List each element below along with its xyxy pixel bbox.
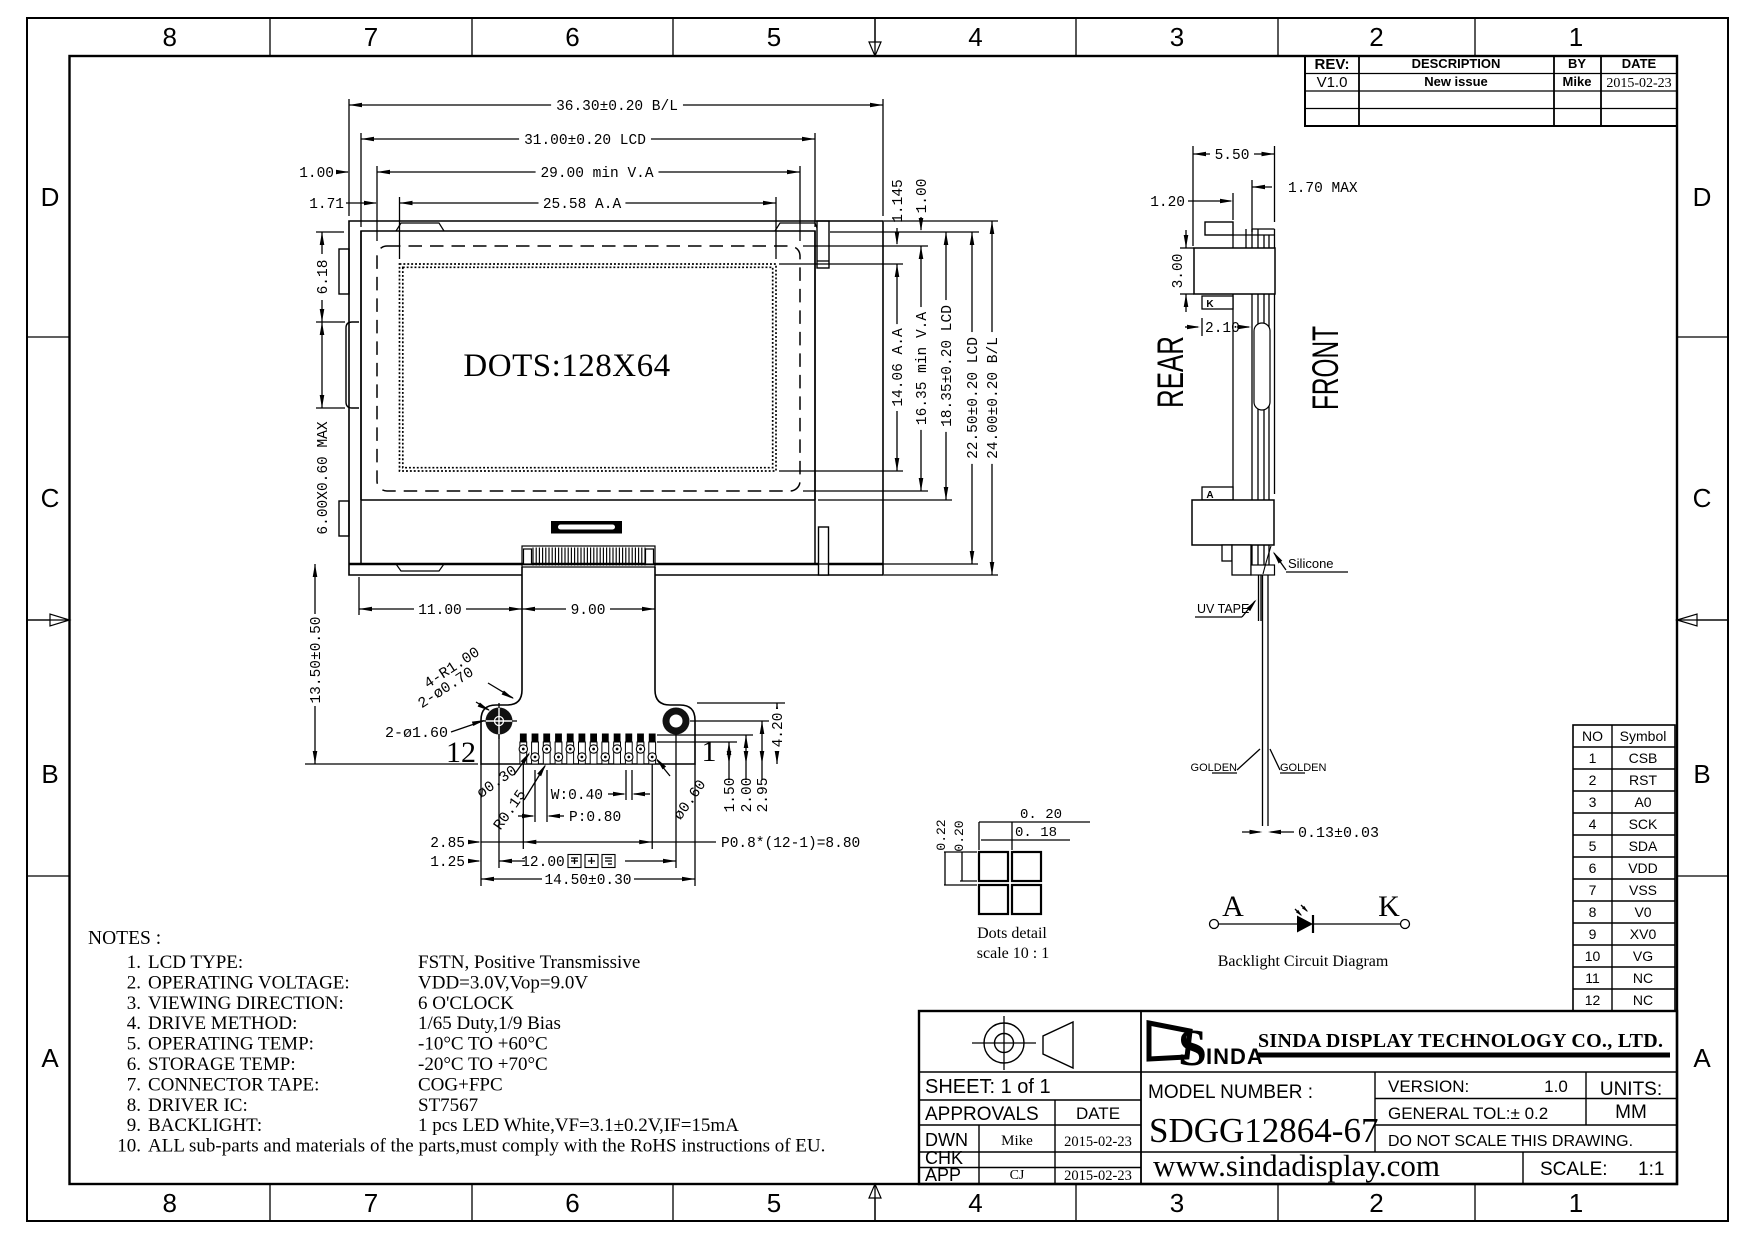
svg-text:4.: 4. — [127, 1013, 141, 1034]
svg-text:New issue: New issue — [1424, 74, 1488, 89]
svg-text:Symbol: Symbol — [1620, 728, 1667, 744]
svg-text:14.06 A.A: 14.06 A.A — [891, 328, 907, 407]
svg-text:9.: 9. — [127, 1115, 141, 1136]
svg-text:3: 3 — [1589, 794, 1597, 810]
svg-text:2.00: 2.00 — [740, 778, 756, 813]
svg-text:VSS: VSS — [1629, 882, 1657, 898]
svg-text:CJ: CJ — [1010, 1168, 1025, 1183]
svg-text:B: B — [1693, 759, 1710, 789]
svg-text:1.71: 1.71 — [309, 197, 344, 213]
svg-text:REAR: REAR — [1150, 336, 1191, 408]
svg-text:3: 3 — [1170, 1188, 1184, 1218]
svg-text:VDD=3.0V,Vop=9.0V: VDD=3.0V,Vop=9.0V — [418, 972, 588, 993]
svg-text:ST7567: ST7567 — [418, 1095, 478, 1116]
svg-text:APP: APP — [925, 1165, 961, 1185]
svg-text:V0: V0 — [1634, 904, 1651, 920]
svg-text:GOLDEN: GOLDEN — [1280, 762, 1327, 774]
svg-text:6.00X0.60 MAX: 6.00X0.60 MAX — [316, 421, 332, 534]
svg-text:VDD: VDD — [1628, 860, 1658, 876]
svg-text:GENERAL TOL:± 0.2: GENERAL TOL:± 0.2 — [1388, 1104, 1548, 1123]
svg-text:5.50: 5.50 — [1215, 148, 1250, 164]
svg-text:1.: 1. — [127, 952, 141, 973]
svg-text:K: K — [1378, 890, 1400, 923]
svg-text:C: C — [41, 483, 60, 513]
svg-text:1:1: 1:1 — [1638, 1159, 1664, 1180]
svg-text:2: 2 — [1589, 772, 1597, 788]
svg-text:D: D — [41, 182, 60, 212]
svg-text:0. 18: 0. 18 — [1015, 825, 1057, 841]
svg-text:S: S — [1178, 1020, 1207, 1077]
svg-text:K: K — [1206, 299, 1214, 310]
svg-text:Mike: Mike — [1563, 74, 1592, 89]
svg-text:-10°C TO +60°C: -10°C TO +60°C — [418, 1034, 548, 1055]
svg-text:SCK: SCK — [1629, 816, 1658, 832]
svg-text:4: 4 — [1589, 816, 1597, 832]
svg-text:A: A — [1693, 1043, 1711, 1073]
svg-text:2.10: 2.10 — [1205, 321, 1240, 337]
svg-text:22.50±0.20 LCD: 22.50±0.20 LCD — [966, 337, 982, 459]
svg-text:1: 1 — [1569, 1188, 1583, 1218]
svg-text:SCALE:: SCALE: — [1540, 1159, 1608, 1180]
svg-text:0.13±0.03: 0.13±0.03 — [1298, 825, 1379, 842]
svg-text:3.00: 3.00 — [1171, 254, 1187, 289]
svg-text:Dots detail: Dots detail — [977, 925, 1047, 942]
svg-text:A: A — [1222, 890, 1244, 923]
svg-text:DATE: DATE — [1622, 56, 1657, 71]
svg-text:4.20: 4.20 — [771, 713, 787, 748]
svg-text:6: 6 — [1589, 860, 1597, 876]
svg-text:1.50: 1.50 — [723, 778, 739, 813]
svg-text:STORAGE TEMP:: STORAGE TEMP: — [148, 1054, 296, 1075]
svg-text:UNITS:: UNITS: — [1600, 1079, 1662, 1100]
svg-text:7.: 7. — [127, 1074, 141, 1095]
svg-text:V1.0: V1.0 — [1317, 74, 1348, 91]
svg-text:Backlight Circuit Diagram: Backlight Circuit Diagram — [1218, 953, 1389, 970]
svg-text:NO: NO — [1582, 728, 1603, 744]
svg-text:RST: RST — [1629, 772, 1657, 788]
svg-text:1 pcs LED White,VF=3.1±0.2V,IF: 1 pcs LED White,VF=3.1±0.2V,IF=15mA — [418, 1115, 739, 1136]
svg-text:NC: NC — [1633, 992, 1653, 1008]
svg-text:B: B — [41, 759, 58, 789]
svg-text:7: 7 — [364, 1188, 378, 1218]
svg-text:1.145: 1.145 — [891, 179, 907, 223]
svg-text:11.00: 11.00 — [418, 603, 462, 619]
svg-text:16.35 min V.A: 16.35 min V.A — [915, 312, 931, 425]
svg-text:1: 1 — [1589, 750, 1597, 766]
svg-text:2: 2 — [1369, 1188, 1383, 1218]
svg-text:1.00: 1.00 — [915, 179, 931, 214]
svg-text:MM: MM — [1615, 1102, 1647, 1123]
svg-text:A0: A0 — [1634, 794, 1651, 810]
svg-text:-20°C TO +70°C: -20°C TO +70°C — [418, 1054, 548, 1075]
svg-text:31.00±0.20 LCD: 31.00±0.20 LCD — [524, 133, 646, 149]
svg-text:SINDA DISPLAY TECHNOLOGY CO.: SINDA DISPLAY TECHNOLOGY CO., LTD. — [1258, 1030, 1663, 1052]
svg-text:SDGG12864-67: SDGG12864-67 — [1149, 1111, 1378, 1150]
svg-text:12: 12 — [1585, 992, 1601, 1008]
svg-text:4: 4 — [968, 22, 982, 52]
svg-text:2015-02-23: 2015-02-23 — [1064, 1168, 1132, 1184]
svg-text:2.85: 2.85 — [430, 836, 465, 852]
svg-text:3.: 3. — [127, 993, 141, 1014]
svg-text:DRIVE METHOD:: DRIVE METHOD: — [148, 1013, 297, 1034]
svg-text:6.: 6. — [127, 1054, 141, 1075]
svg-text:DATE: DATE — [1076, 1104, 1120, 1123]
svg-text:7: 7 — [1589, 882, 1597, 898]
svg-text:1.00: 1.00 — [299, 166, 334, 182]
svg-text:DOTS:128X64: DOTS:128X64 — [463, 348, 670, 384]
svg-text:6 O'CLOCK: 6 O'CLOCK — [418, 993, 514, 1014]
svg-text:scale 10 : 1: scale 10 : 1 — [977, 945, 1049, 962]
svg-text:0.20: 0.20 — [952, 820, 967, 851]
svg-text:2015-02-23: 2015-02-23 — [1606, 76, 1671, 91]
svg-text:1: 1 — [702, 735, 717, 768]
svg-text:XV0: XV0 — [1630, 926, 1657, 942]
svg-text:13.50±0.50: 13.50±0.50 — [309, 616, 325, 703]
svg-text:2: 2 — [1369, 22, 1383, 52]
svg-text:14.50±0.30: 14.50±0.30 — [544, 873, 631, 889]
svg-text:12.00: 12.00 — [521, 855, 565, 871]
svg-text:MODEL NUMBER :: MODEL NUMBER : — [1148, 1082, 1313, 1103]
svg-text:11: 11 — [1585, 970, 1600, 986]
svg-text:D: D — [1693, 182, 1712, 212]
svg-text:7: 7 — [364, 22, 378, 52]
svg-text:5: 5 — [767, 22, 781, 52]
svg-text:APPROVALS: APPROVALS — [925, 1104, 1039, 1125]
svg-text:VG: VG — [1633, 948, 1653, 964]
svg-text:24.00±0.20 B/L: 24.00±0.20 B/L — [986, 337, 1002, 459]
svg-text:W:0.40: W:0.40 — [551, 788, 603, 804]
svg-text:BY: BY — [1568, 56, 1586, 71]
svg-text:Silicone: Silicone — [1288, 556, 1334, 571]
svg-text:1/65 Duty,1/9 Bias: 1/65 Duty,1/9 Bias — [418, 1013, 561, 1034]
svg-text:CONNECTOR TAPE:: CONNECTOR TAPE: — [148, 1074, 319, 1095]
svg-text:8.: 8. — [127, 1095, 141, 1116]
svg-text:DWN: DWN — [925, 1130, 968, 1150]
svg-text:DRIVER IC:: DRIVER IC: — [148, 1095, 248, 1116]
svg-text:C: C — [1693, 483, 1712, 513]
svg-text:NOTES :: NOTES : — [88, 928, 161, 949]
svg-text:8: 8 — [163, 22, 177, 52]
svg-text:GOLDEN: GOLDEN — [1191, 762, 1238, 774]
svg-text:6: 6 — [565, 22, 579, 52]
svg-text:0.22: 0.22 — [934, 819, 949, 850]
svg-text:1.70 MAX: 1.70 MAX — [1288, 181, 1358, 197]
svg-text:36.30±0.20 B/L: 36.30±0.20 B/L — [556, 99, 678, 115]
svg-text:COG+FPC: COG+FPC — [418, 1074, 503, 1095]
svg-text:P0.8*(12-1)=8.80: P0.8*(12-1)=8.80 — [721, 836, 860, 852]
svg-text:ALL sub-parts and materials of: ALL sub-parts and materials of the parts… — [148, 1136, 825, 1157]
svg-text:UV TAPE: UV TAPE — [1197, 602, 1249, 616]
svg-text:3: 3 — [1170, 22, 1184, 52]
svg-text:Mike: Mike — [1001, 1133, 1033, 1149]
svg-text:www.sindadisplay.com: www.sindadisplay.com — [1153, 1148, 1440, 1183]
svg-text:2015-02-23: 2015-02-23 — [1064, 1134, 1132, 1150]
svg-text:8: 8 — [1589, 904, 1597, 920]
svg-text:18.35±0.20 LCD: 18.35±0.20 LCD — [940, 305, 956, 427]
svg-text:SHEET: 1 of 1: SHEET: 1 of 1 — [925, 1076, 1051, 1098]
svg-text:6.18: 6.18 — [316, 260, 332, 295]
svg-text:FSTN, Positive Transmissive: FSTN, Positive Transmissive — [418, 952, 640, 973]
svg-text:9.00: 9.00 — [571, 603, 606, 619]
svg-text:A: A — [41, 1043, 59, 1073]
svg-text:2.95: 2.95 — [756, 778, 772, 813]
svg-text:LCD TYPE:: LCD TYPE: — [148, 952, 243, 973]
svg-text:10: 10 — [1585, 948, 1601, 964]
svg-text:REV:: REV: — [1314, 56, 1349, 73]
svg-text:5.: 5. — [127, 1034, 141, 1055]
svg-text:OPERATING VOLTAGE:: OPERATING VOLTAGE: — [148, 972, 350, 993]
svg-text:1: 1 — [1569, 22, 1583, 52]
svg-text:NC: NC — [1633, 970, 1653, 986]
svg-text:SDA: SDA — [1629, 838, 1658, 854]
svg-text:5: 5 — [1589, 838, 1597, 854]
svg-text:INDA: INDA — [1206, 1044, 1264, 1069]
svg-text:29.00 min V.A: 29.00 min V.A — [540, 166, 653, 182]
svg-text:DESCRIPTION: DESCRIPTION — [1412, 56, 1501, 71]
svg-text:2-ø1.60: 2-ø1.60 — [385, 725, 448, 742]
svg-text:VERSION:: VERSION: — [1388, 1077, 1469, 1096]
svg-text:5: 5 — [767, 1188, 781, 1218]
svg-text:25.58 A.A: 25.58 A.A — [543, 197, 622, 213]
svg-text:6: 6 — [565, 1188, 579, 1218]
svg-text:VIEWING DIRECTION:: VIEWING DIRECTION: — [148, 993, 344, 1014]
svg-text:CSB: CSB — [1629, 750, 1658, 766]
svg-text:4: 4 — [968, 1188, 982, 1218]
svg-text:P:0.80: P:0.80 — [569, 810, 621, 826]
svg-text:10.: 10. — [117, 1136, 141, 1157]
svg-text:1.20: 1.20 — [1150, 195, 1185, 211]
svg-text:9: 9 — [1589, 926, 1597, 942]
svg-text:OPERATING TEMP:: OPERATING TEMP: — [148, 1034, 314, 1055]
svg-text:FRONT: FRONT — [1305, 326, 1346, 410]
svg-text:2.: 2. — [127, 972, 141, 993]
svg-text:0. 20: 0. 20 — [1020, 807, 1062, 823]
svg-text:8: 8 — [163, 1188, 177, 1218]
svg-text:1.25: 1.25 — [430, 855, 465, 871]
svg-text:BACKLIGHT:: BACKLIGHT: — [148, 1115, 262, 1136]
svg-text:1.0: 1.0 — [1544, 1077, 1568, 1096]
